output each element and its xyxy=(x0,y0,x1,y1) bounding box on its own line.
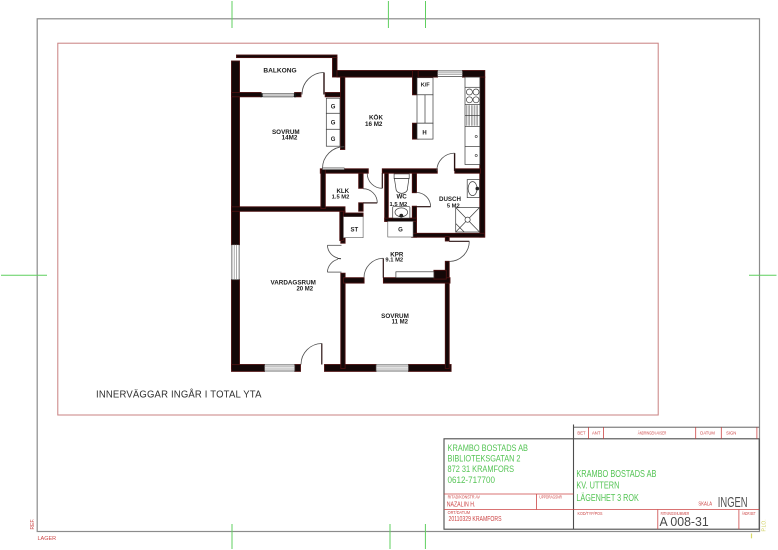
svg-text:INGEN: INGEN xyxy=(718,495,748,511)
svg-text:BALKONG: BALKONG xyxy=(263,67,296,74)
svg-text:SKALA: SKALA xyxy=(698,502,712,508)
svg-text:KRAMBO BOSTADS AB: KRAMBO BOSTADS AB xyxy=(448,443,529,453)
svg-text:G: G xyxy=(398,228,403,234)
svg-text:KV. UTTERN: KV. UTTERN xyxy=(576,481,619,492)
svg-text:KÖK: KÖK xyxy=(369,112,383,121)
svg-text:G: G xyxy=(331,120,336,126)
svg-text:872 31 KRAMFORS: 872 31 KRAMFORS xyxy=(448,464,515,474)
svg-text:11 M2: 11 M2 xyxy=(392,319,409,325)
svg-text:NAZALIN H.: NAZALIN H. xyxy=(447,501,476,508)
svg-text:LAGER: LAGER xyxy=(38,536,57,542)
svg-text:ORT/DATUM: ORT/DATUM xyxy=(448,510,471,515)
svg-text:G: G xyxy=(331,105,336,111)
svg-text:VARDAGSRUM: VARDAGSRUM xyxy=(271,279,316,286)
svg-text:LÄGENHET 3 ROK: LÄGENHET 3 ROK xyxy=(576,492,639,504)
svg-text:REF.: REF. xyxy=(30,519,36,530)
svg-text:9.1 M2: 9.1 M2 xyxy=(385,257,403,263)
svg-text:SIGN: SIGN xyxy=(726,431,736,436)
svg-text:KOD/TYP/POS: KOD/TYP/POS xyxy=(578,511,603,516)
svg-text:UPPDRAGSNR: UPPDRAGSNR xyxy=(539,495,562,500)
svg-text:1.5 M2: 1.5 M2 xyxy=(332,195,350,201)
svg-text:BIBLIOTEKSGATAN 2: BIBLIOTEKSGATAN 2 xyxy=(448,454,521,464)
svg-text:ST: ST xyxy=(350,227,358,233)
svg-text:G: G xyxy=(331,137,336,143)
svg-text:ANT: ANT xyxy=(592,431,601,436)
svg-text:DATUM: DATUM xyxy=(700,431,715,436)
svg-text:5 M2: 5 M2 xyxy=(447,203,460,209)
svg-text:H: H xyxy=(422,130,426,136)
svg-text:A 008-31: A 008-31 xyxy=(660,514,709,529)
svg-text:WC: WC xyxy=(396,194,407,201)
svg-text:P.LO.: P.LO. xyxy=(762,519,768,531)
svg-text:ÄNDR BET: ÄNDR BET xyxy=(742,511,756,516)
svg-text:16 M2: 16 M2 xyxy=(365,121,383,128)
svg-text:0612-717700: 0612-717700 xyxy=(448,475,496,485)
svg-text:BET: BET xyxy=(577,431,586,436)
svg-text:14M2: 14M2 xyxy=(282,134,298,141)
svg-text:ÄNDRINGEN AVSER: ÄNDRINGEN AVSER xyxy=(638,431,667,436)
svg-text:KRAMBO BOSTADS AB: KRAMBO BOSTADS AB xyxy=(576,469,656,480)
svg-text:20110329 KRAMFORS: 20110329 KRAMFORS xyxy=(449,516,502,523)
svg-text:K/F: K/F xyxy=(421,83,431,89)
svg-text:20 M2: 20 M2 xyxy=(296,287,313,293)
svg-text:1.5 M2: 1.5 M2 xyxy=(390,202,408,208)
svg-text:RITAD/KONSTR AV: RITAD/KONSTR AV xyxy=(448,495,481,500)
svg-text:DUSCH: DUSCH xyxy=(439,196,462,203)
svg-text:INNERVÄGGAR INGÅR I TOTAL YTA: INNERVÄGGAR INGÅR I TOTAL YTA xyxy=(96,387,262,400)
